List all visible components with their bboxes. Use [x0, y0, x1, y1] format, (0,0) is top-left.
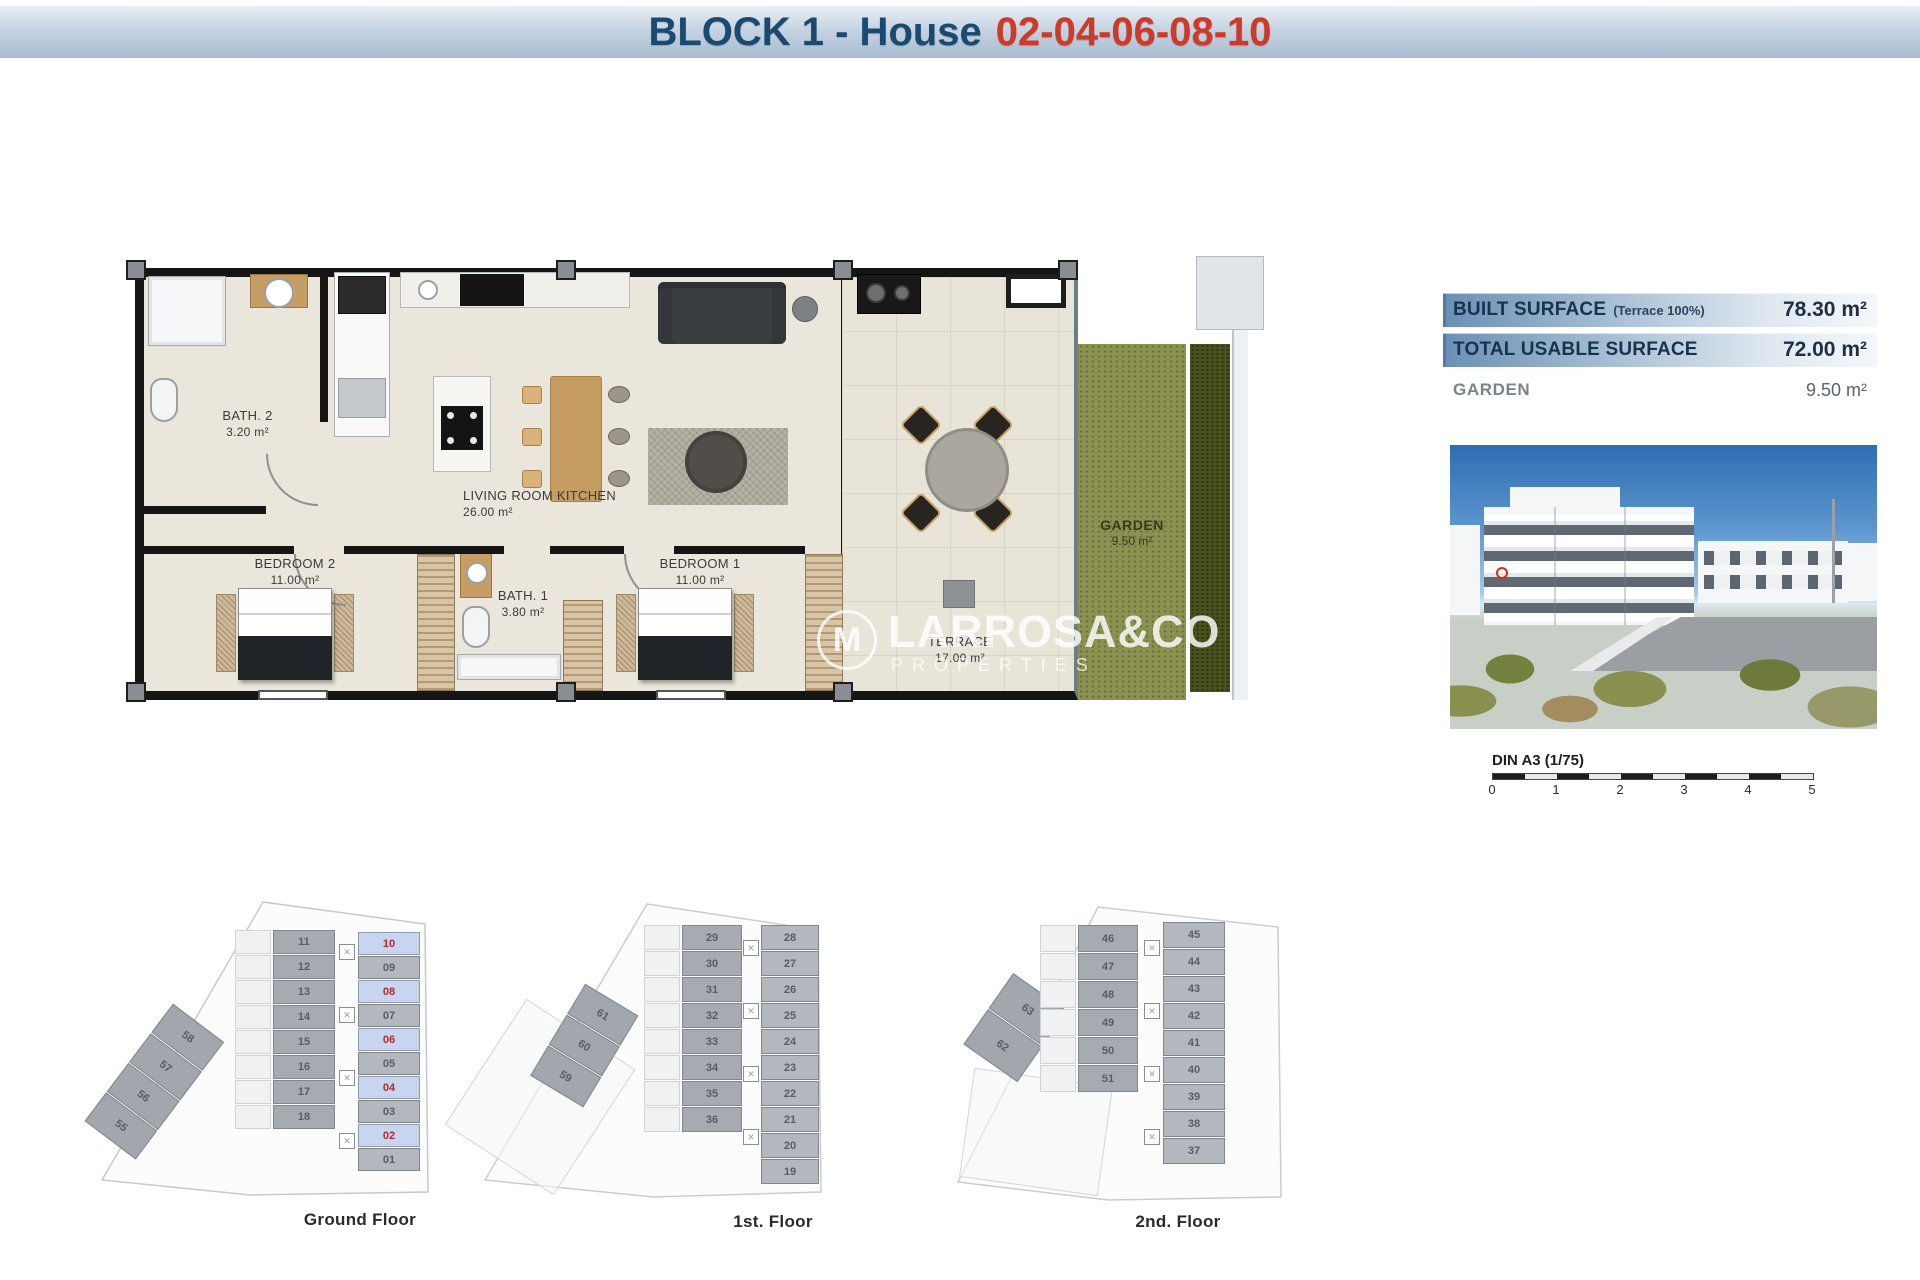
unit-ghost-cell: [1040, 925, 1076, 952]
bedroom-wall: [344, 546, 504, 554]
bed: [638, 588, 732, 680]
scale-segment: [1717, 774, 1749, 779]
red-circle-marker: [1496, 567, 1508, 579]
first-floor-label: 1st. Floor: [683, 1212, 863, 1232]
unit-22: 22: [761, 1081, 819, 1106]
street-lamp: [1832, 499, 1835, 603]
unit-27: 27: [761, 951, 819, 976]
unit-ghost-cell: [1040, 1065, 1076, 1092]
unit-16: 16: [273, 1055, 335, 1079]
unit-33: 33: [682, 1029, 742, 1054]
wall-pillar: [126, 682, 146, 702]
scale-segment: [1685, 774, 1717, 779]
unit-40: 40: [1163, 1057, 1225, 1083]
unit-41: 41: [1163, 1030, 1225, 1056]
wardrobe: [805, 554, 843, 691]
building-far-left: [1450, 525, 1480, 615]
second-floor-label: 2nd. Floor: [1088, 1212, 1268, 1232]
scale-tick: 1: [1552, 782, 1559, 797]
fridge: [338, 378, 386, 418]
ground-floor-label: Ground Floor: [270, 1210, 450, 1230]
bedside-rug: [734, 594, 754, 672]
unit-ghost-cell: [1040, 981, 1076, 1008]
unit-ghost-cell: [644, 1107, 680, 1132]
building-main: [1484, 507, 1694, 625]
scale-segment: [1525, 774, 1557, 779]
unit-10: 10: [358, 932, 420, 955]
unit-ghost-cell: [644, 1029, 680, 1054]
unit-36: 36: [682, 1107, 742, 1132]
terrace-table: [925, 428, 1009, 512]
unit-49: 49: [1078, 1009, 1138, 1036]
unit-ghost-cell: [644, 1081, 680, 1106]
unit-43: 43: [1163, 976, 1225, 1002]
wall-pillar: [833, 682, 853, 702]
unit-23: 23: [761, 1055, 819, 1080]
unit-07: 07: [358, 1004, 420, 1027]
concrete-pad: [1196, 256, 1264, 330]
unit-32: 32: [682, 1003, 742, 1028]
unit-45: 45: [1163, 922, 1225, 948]
unit-ghost-cell: [1040, 1037, 1076, 1064]
garden-label: GARDEN 9.50 m²: [1080, 516, 1184, 550]
unit-48: 48: [1078, 981, 1138, 1008]
unit-ghost-cell: [644, 925, 680, 950]
window: [656, 690, 726, 700]
terrace-window: [1006, 274, 1066, 308]
title-bar: BLOCK 1 - House 02-04-06-08-10: [0, 6, 1920, 58]
sofa: [658, 282, 786, 344]
unit-01: 01: [358, 1148, 420, 1171]
wall-pillar: [556, 260, 576, 280]
bedroom-wall: [550, 546, 624, 554]
built-surface-row: BUILT SURFACE (Terrace 100%) 78.30 m²: [1443, 293, 1877, 327]
scale-segments: [1492, 773, 1814, 780]
unit-42: 42: [1163, 1003, 1225, 1029]
unit-ghost-cell: [235, 1030, 271, 1054]
unit-ghost-cell: [1040, 1009, 1076, 1036]
unit-ghost-cell: [644, 1003, 680, 1028]
unit-09: 09: [358, 956, 420, 979]
unit-ghost-cell: [644, 977, 680, 1002]
unit-28: 28: [761, 925, 819, 950]
unit-ghost-cell: [644, 1055, 680, 1080]
wardrobe: [417, 554, 455, 691]
scale-segment: [1589, 774, 1621, 779]
unit-ghost-cell: [235, 1055, 271, 1079]
unit-34: 34: [682, 1055, 742, 1080]
unit-37: 37: [1163, 1138, 1225, 1164]
unit-38: 38: [1163, 1111, 1225, 1137]
bath1-label: BATH. 1 3.80 m²: [468, 588, 578, 620]
bedroom1-label: BEDROOM 1 11.00 m²: [635, 556, 765, 588]
unit-50: 50: [1078, 1037, 1138, 1064]
unit-11: 11: [273, 930, 335, 954]
unit-26: 26: [761, 977, 819, 1002]
unit-21: 21: [761, 1107, 819, 1132]
unit-18: 18: [273, 1105, 335, 1129]
unit-29: 29: [682, 925, 742, 950]
unit-39: 39: [1163, 1084, 1225, 1110]
unit-19: 19: [761, 1159, 819, 1184]
unit-ghost-cell: [644, 951, 680, 976]
bedside-rug: [616, 594, 636, 672]
scale-segment: [1653, 774, 1685, 779]
bed: [238, 588, 332, 680]
outdoor-kitchen: [857, 274, 921, 314]
unit-02: 02: [358, 1124, 420, 1147]
toilet: [150, 378, 178, 422]
unit-ghost-cell: [235, 955, 271, 979]
stair-shaft: ✕: [1144, 1129, 1160, 1145]
unit-ghost-cell: [235, 980, 271, 1004]
garden-surface-row: GARDEN 9.50 m²: [1443, 373, 1877, 407]
sink: [264, 278, 294, 308]
stair-shaft: ✕: [743, 1003, 759, 1019]
stair-shaft: ✕: [1144, 1066, 1160, 1082]
garden-hedge: [1190, 344, 1230, 692]
stair-shaft: ✕: [339, 1007, 355, 1023]
terrace-label: TERRACE 17.00 m²: [900, 634, 1020, 666]
stair-shaft: ✕: [339, 944, 355, 960]
unit-14: 14: [273, 1005, 335, 1029]
unit-25: 25: [761, 1003, 819, 1028]
bath2-wall: [144, 506, 266, 514]
scale-segment: [1557, 774, 1589, 779]
scale-label: DIN A3 (1/75): [1492, 752, 1832, 769]
bedroom-wall: [674, 546, 805, 554]
dining-chair: [608, 386, 630, 403]
brochure-page: BLOCK 1 - House 02-04-06-08-10 BATH. 2 3…: [0, 0, 1920, 1280]
unit-08: 08: [358, 980, 420, 1003]
bedroom-wall: [144, 546, 294, 554]
scale-segment: [1493, 774, 1525, 779]
garden-path: [1232, 268, 1248, 700]
bath2-wall: [320, 272, 328, 422]
stair-shaft: ✕: [1144, 940, 1160, 956]
counter-appliance: [460, 274, 524, 306]
wall-pillar: [556, 682, 576, 702]
unit-04: 04: [358, 1076, 420, 1099]
dining-chair: [522, 428, 542, 446]
ground-floor-miniplan: 58575655 1112131415161718 ✕✕✕✕ 100908070…: [100, 892, 445, 1237]
unit-ghost-cell: [235, 930, 271, 954]
unit-44: 44: [1163, 949, 1225, 975]
title-house-numbers: 02-04-06-08-10: [996, 10, 1272, 55]
shower: [148, 276, 226, 346]
bedside-rug: [216, 594, 236, 672]
wall-pillar: [1058, 260, 1078, 280]
round-rug: [685, 431, 747, 493]
stair-shaft: ✕: [1144, 1003, 1160, 1019]
stair-shaft: ✕: [339, 1133, 355, 1149]
building-right: [1698, 541, 1848, 603]
unit-35: 35: [682, 1081, 742, 1106]
second-floor-miniplan: 6362 464748495051 ✕✕✕✕ 45444342414039383…: [948, 892, 1293, 1237]
unit-51: 51: [1078, 1065, 1138, 1092]
living-label: LIVING ROOM KITCHEN 26.00 m²: [463, 488, 643, 520]
scale-ticks: 012345: [1492, 782, 1832, 798]
unit-17: 17: [273, 1080, 335, 1104]
main-floorplan: BATH. 2 3.20 m² LIVING ROOM KITCHEN 26.0: [130, 258, 1260, 710]
dining-chair: [522, 470, 542, 488]
dining-table: [550, 376, 602, 502]
bath1-sink: [466, 562, 488, 584]
unit-12: 12: [273, 955, 335, 979]
building-far-right: [1848, 543, 1877, 601]
side-table: [792, 296, 818, 322]
dining-chair: [522, 386, 542, 404]
unit-03: 03: [358, 1100, 420, 1123]
unit-24: 24: [761, 1029, 819, 1054]
unit-30: 30: [682, 951, 742, 976]
stair-shaft: ✕: [339, 1070, 355, 1086]
unit-ghost-cell: [235, 1080, 271, 1104]
dining-chair: [608, 470, 630, 487]
scale-tick: 0: [1488, 782, 1495, 797]
scale-segment: [1781, 774, 1813, 779]
bath1-shower: [457, 654, 561, 680]
scale-segment: [1621, 774, 1653, 779]
scrub-foreground: [1450, 641, 1877, 729]
scale-segment: [1749, 774, 1781, 779]
unit-06: 06: [358, 1028, 420, 1051]
window: [258, 690, 328, 700]
unit-05: 05: [358, 1052, 420, 1075]
stair-shaft: ✕: [743, 1129, 759, 1145]
stair-shaft: ✕: [743, 940, 759, 956]
unit-20: 20: [761, 1133, 819, 1158]
scale-tick: 3: [1680, 782, 1687, 797]
unit-47: 47: [1078, 953, 1138, 980]
unit-46: 46: [1078, 925, 1138, 952]
first-floor-miniplan: 616059 2930313233343536 ✕✕✕✕ 28272625242…: [425, 892, 825, 1237]
oven: [338, 276, 386, 314]
wall-pillar: [833, 260, 853, 280]
scale-tick: 5: [1808, 782, 1815, 797]
scale-tick: 4: [1744, 782, 1751, 797]
kitchen-sink: [418, 280, 438, 300]
bedroom2-label: BEDROOM 2 11.00 m²: [230, 556, 360, 588]
unit-ghost-cell: [235, 1105, 271, 1129]
bath2-label: BATH. 2 3.20 m²: [190, 408, 305, 440]
planter: [943, 580, 975, 608]
wall-pillar: [126, 260, 146, 280]
unit-ghost-cell: [235, 1005, 271, 1029]
cooktop: [441, 406, 483, 450]
scale-tick: 2: [1616, 782, 1623, 797]
building-photo: [1450, 445, 1877, 729]
unit-31: 31: [682, 977, 742, 1002]
scale-bar: DIN A3 (1/75) 012345: [1492, 752, 1832, 798]
unit-ghost-cell: [1040, 953, 1076, 980]
unit-13: 13: [273, 980, 335, 1004]
usable-surface-row: TOTAL USABLE SURFACE 72.00 m²: [1443, 333, 1877, 367]
unit-15: 15: [273, 1030, 335, 1054]
dining-chair: [608, 428, 630, 445]
stair-shaft: ✕: [743, 1066, 759, 1082]
surface-table: BUILT SURFACE (Terrace 100%) 78.30 m² TO…: [1443, 293, 1877, 413]
title-block: BLOCK 1 - House: [648, 10, 981, 55]
